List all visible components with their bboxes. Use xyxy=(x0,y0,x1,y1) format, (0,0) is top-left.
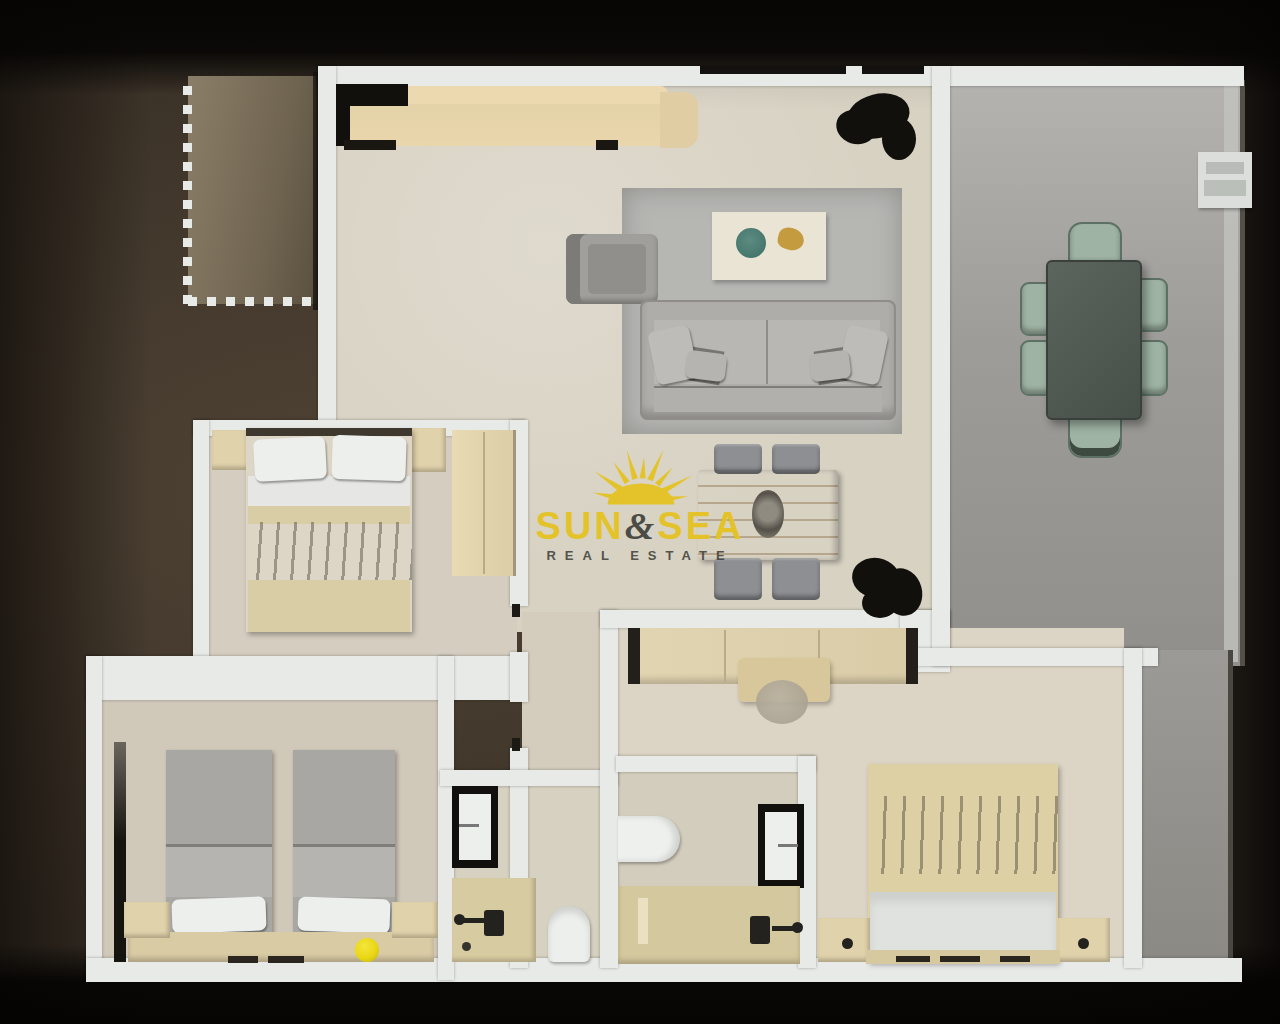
brand-tagline: REAL ESTATE xyxy=(0,548,1280,563)
floor-plan-render: SUN&SEA REAL ESTATE xyxy=(0,0,1280,1024)
watermark: SUN&SEA REAL ESTATE xyxy=(0,0,1280,1024)
brand-word-sea: SEA xyxy=(657,505,744,547)
brand-word-sun: SUN xyxy=(536,505,625,547)
brand-name: SUN&SEA xyxy=(0,504,1280,548)
brand-ampersand: & xyxy=(625,505,658,547)
